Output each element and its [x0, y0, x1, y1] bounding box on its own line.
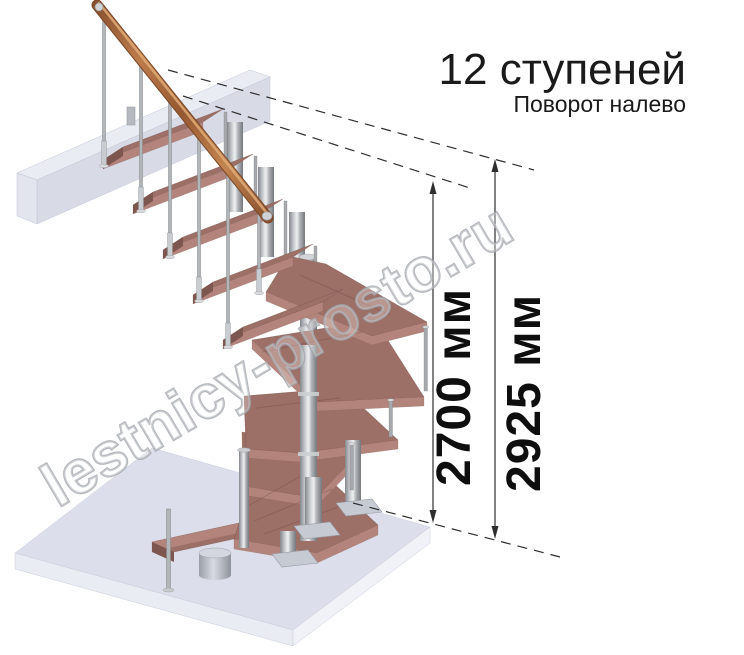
- tread-bolt: [350, 444, 354, 490]
- baluster: [195, 132, 204, 303]
- handrail-start-cap: [95, 3, 103, 11]
- staircase-render: lestnicy-prosto.ru 2700 мм 2925 мм 12 ст…: [0, 0, 744, 655]
- column-stub: [199, 548, 231, 580]
- support-column: [239, 450, 249, 548]
- tread-bolt: [389, 400, 393, 437]
- dimension-label-2700: 2700 мм: [428, 288, 481, 486]
- support-column: [305, 477, 322, 529]
- staircase-illustration: lestnicy-prosto.ru 2700 мм 2925 мм 12 ст…: [0, 0, 744, 655]
- title-turn-direction: Поворот налево: [513, 91, 686, 117]
- handrail-end-cap: [262, 212, 272, 220]
- tread-bolt: [424, 327, 428, 391]
- wall-bracket: [127, 107, 135, 125]
- title-steps-count: 12 ступеней: [439, 45, 686, 94]
- tread-bolt: [284, 201, 287, 257]
- dimension-label-2925: 2925 мм: [498, 294, 551, 492]
- title-block: 12 ступеней Поворот налево: [439, 45, 686, 117]
